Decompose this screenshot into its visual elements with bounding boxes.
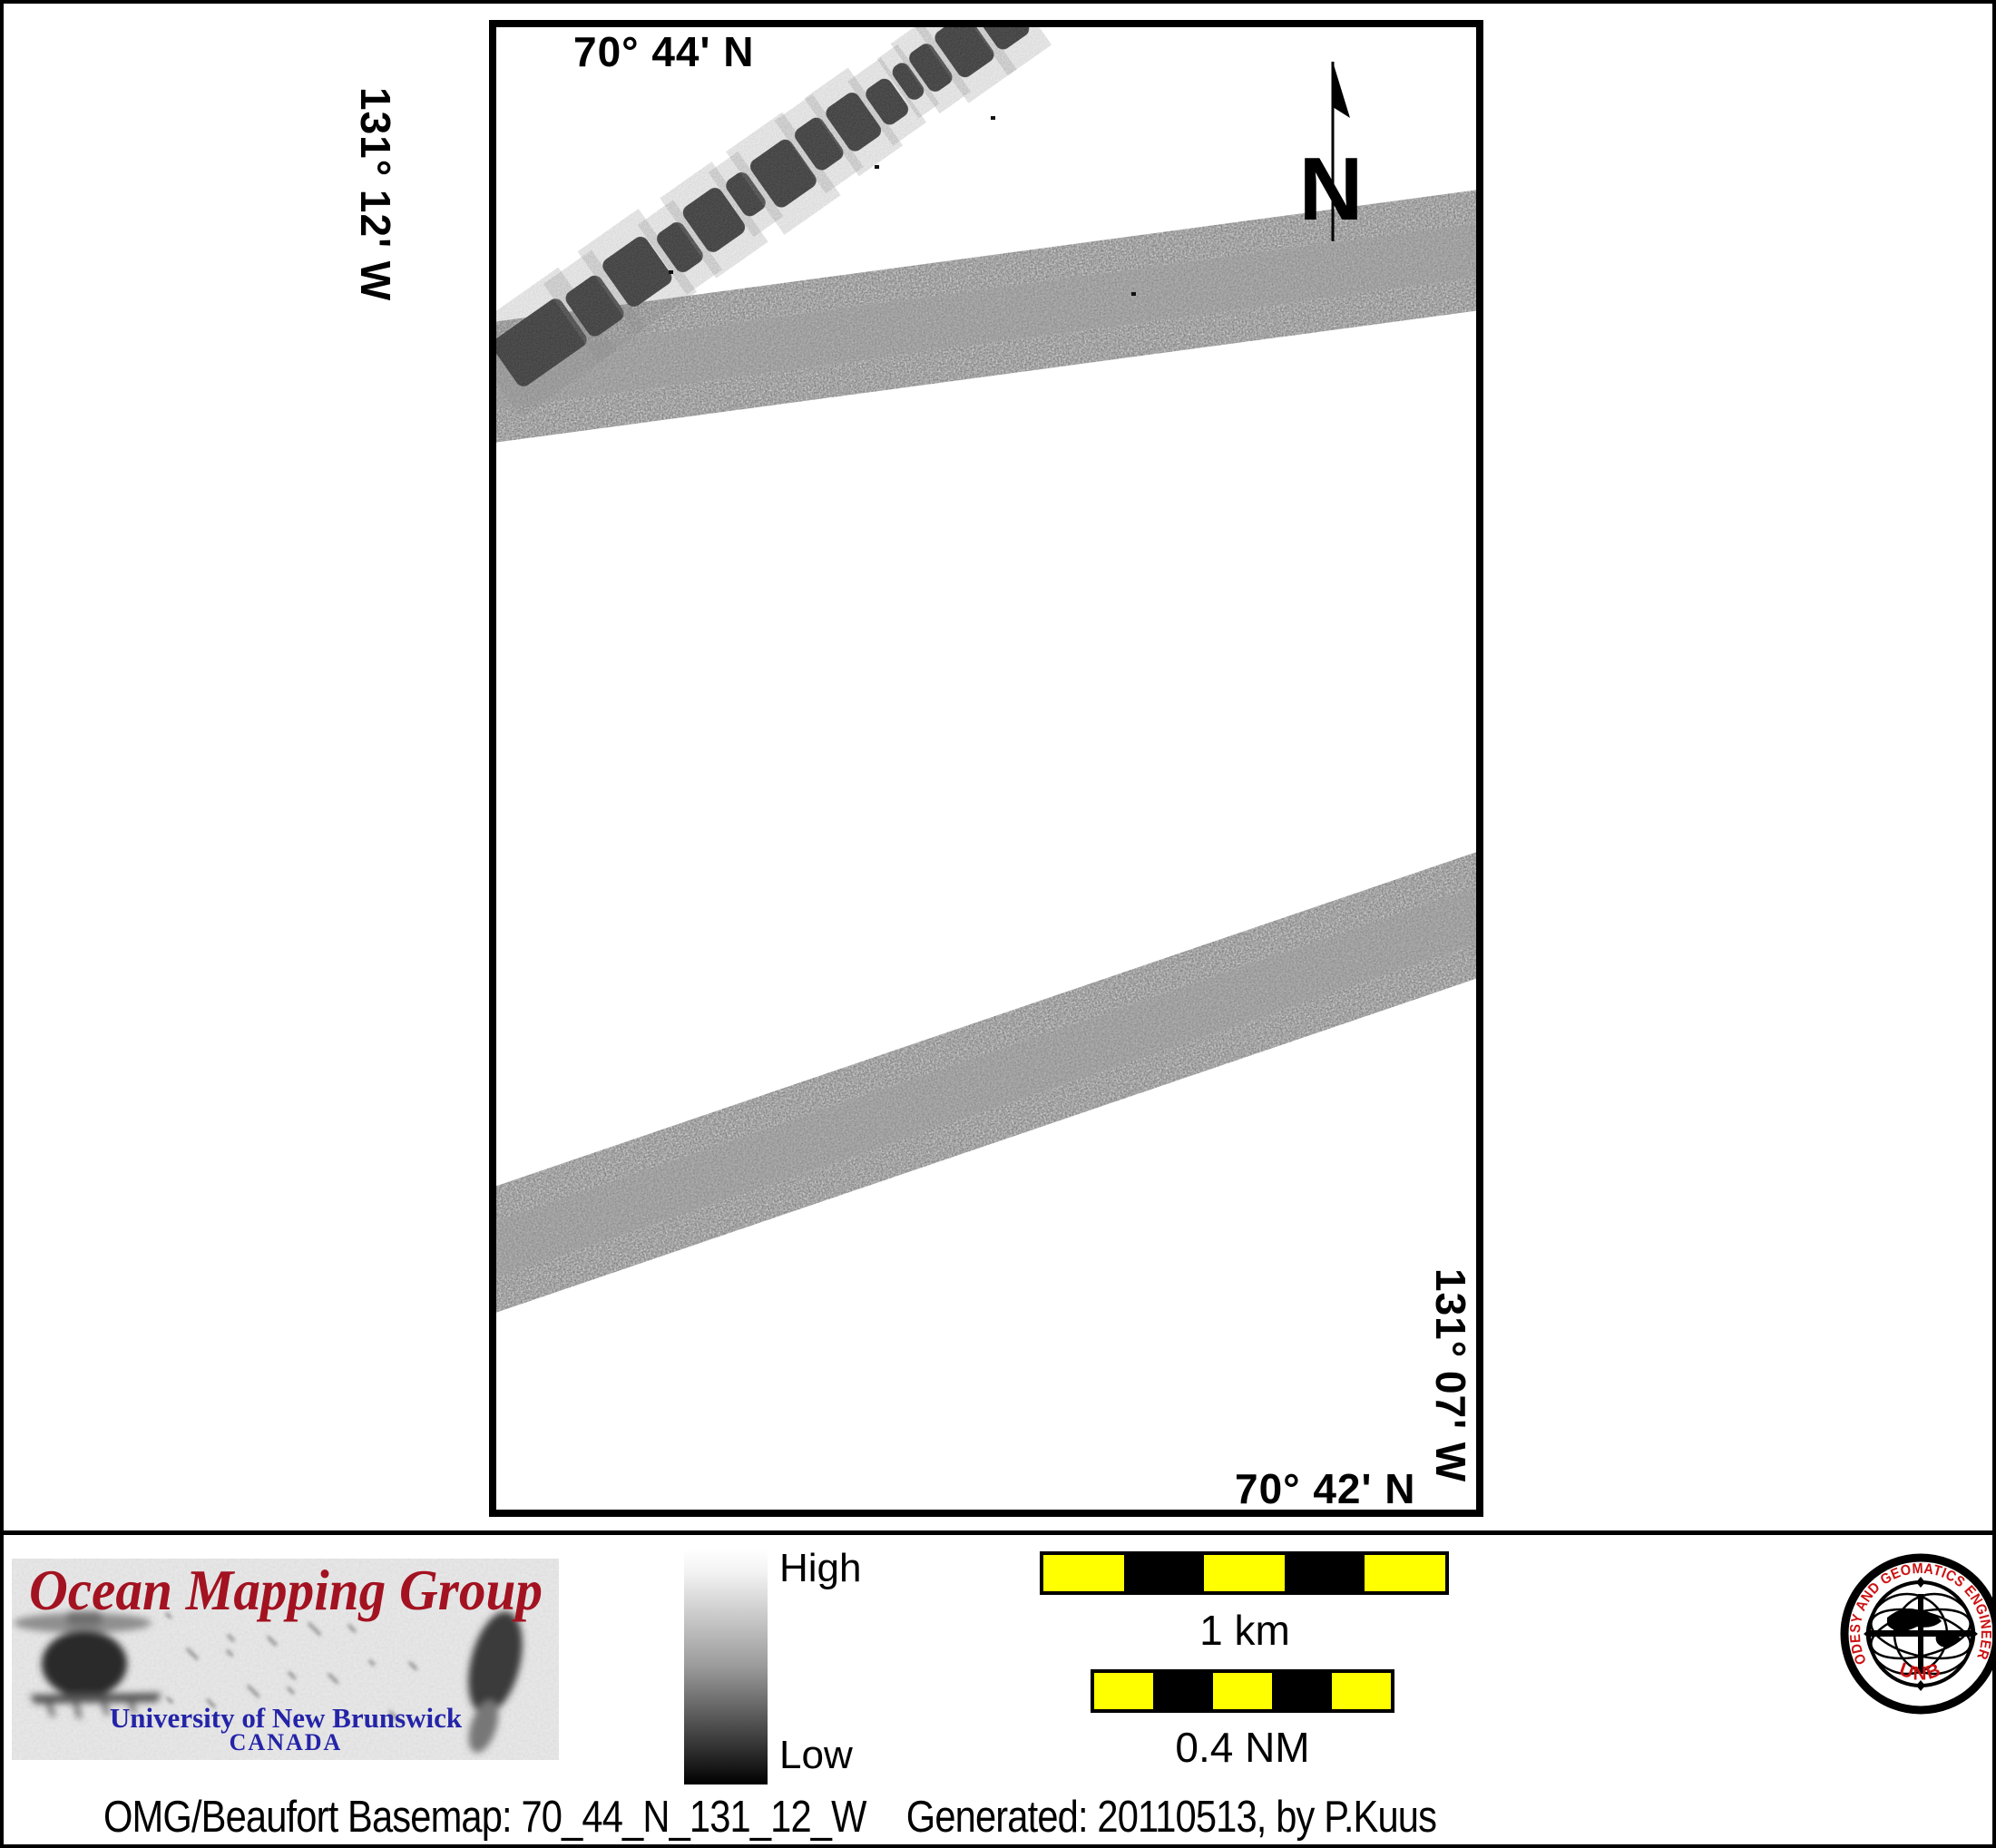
scalebar-segment (1213, 1673, 1272, 1709)
unb-seal: GEODESY AND GEOMATICS ENGINEERING UNB (1840, 1549, 1996, 1719)
scalebar-segment (1272, 1673, 1331, 1709)
scalebar-segment (1094, 1673, 1153, 1709)
scalebar-segment (1043, 1555, 1124, 1591)
sonar-speck (669, 270, 673, 274)
north-arrow-flag (1333, 62, 1350, 118)
scalebar-nm (1091, 1669, 1394, 1713)
north-arrow: N (1299, 62, 1364, 241)
scalebar-segment (1332, 1673, 1391, 1709)
scalebar-segment (1153, 1673, 1212, 1709)
footer-basemap-id: OMG/Beaufort Basemap: 70_44_N_131_12_W (103, 1793, 866, 1842)
gradient-high-label: High (779, 1546, 862, 1591)
scalebar-km-label: 1 km (1041, 1606, 1449, 1655)
map-frame: N (489, 20, 1483, 1517)
page: N 70° 44' N 131° 12' W 131° 07' W 70° 42… (0, 0, 1996, 1848)
scalebar-segment (1124, 1555, 1205, 1591)
coord-label-right: 131° 07' W (1426, 1268, 1475, 1482)
footer-generated: Generated: 20110513, by P.Kuus (906, 1793, 1436, 1842)
omg-logo-country: CANADA (230, 1729, 343, 1755)
gradient-low-label: Low (779, 1733, 853, 1778)
coord-label-bottom: 70° 42' N (1235, 1464, 1415, 1513)
sonar-map-canvas: N (496, 27, 1476, 1510)
omg-logo-title: Ocean Mapping Group (29, 1559, 543, 1622)
footer-caption: OMG/Beaufort Basemap: 70_44_N_131_12_WGe… (103, 1792, 1436, 1843)
sonar-speck (991, 116, 995, 120)
sonar-speck (875, 165, 879, 169)
coord-label-left: 131° 12' W (351, 87, 400, 301)
scalebar-segment (1285, 1555, 1365, 1591)
omg-logo: Ocean Mapping Group University of New Br… (12, 1559, 559, 1760)
panel-divider (4, 1530, 1996, 1535)
coord-label-top: 70° 44' N (573, 27, 754, 76)
intensity-gradient-bar (684, 1550, 768, 1784)
gray-swath (496, 886, 1476, 1279)
scalebar-segment (1204, 1555, 1285, 1591)
scalebar-segment (1365, 1555, 1445, 1591)
north-arrow-label: N (1299, 139, 1364, 239)
sonar-speck (1131, 292, 1136, 296)
scalebar-nm-label: 0.4 NM (1091, 1723, 1394, 1772)
scalebar-km (1040, 1551, 1449, 1595)
